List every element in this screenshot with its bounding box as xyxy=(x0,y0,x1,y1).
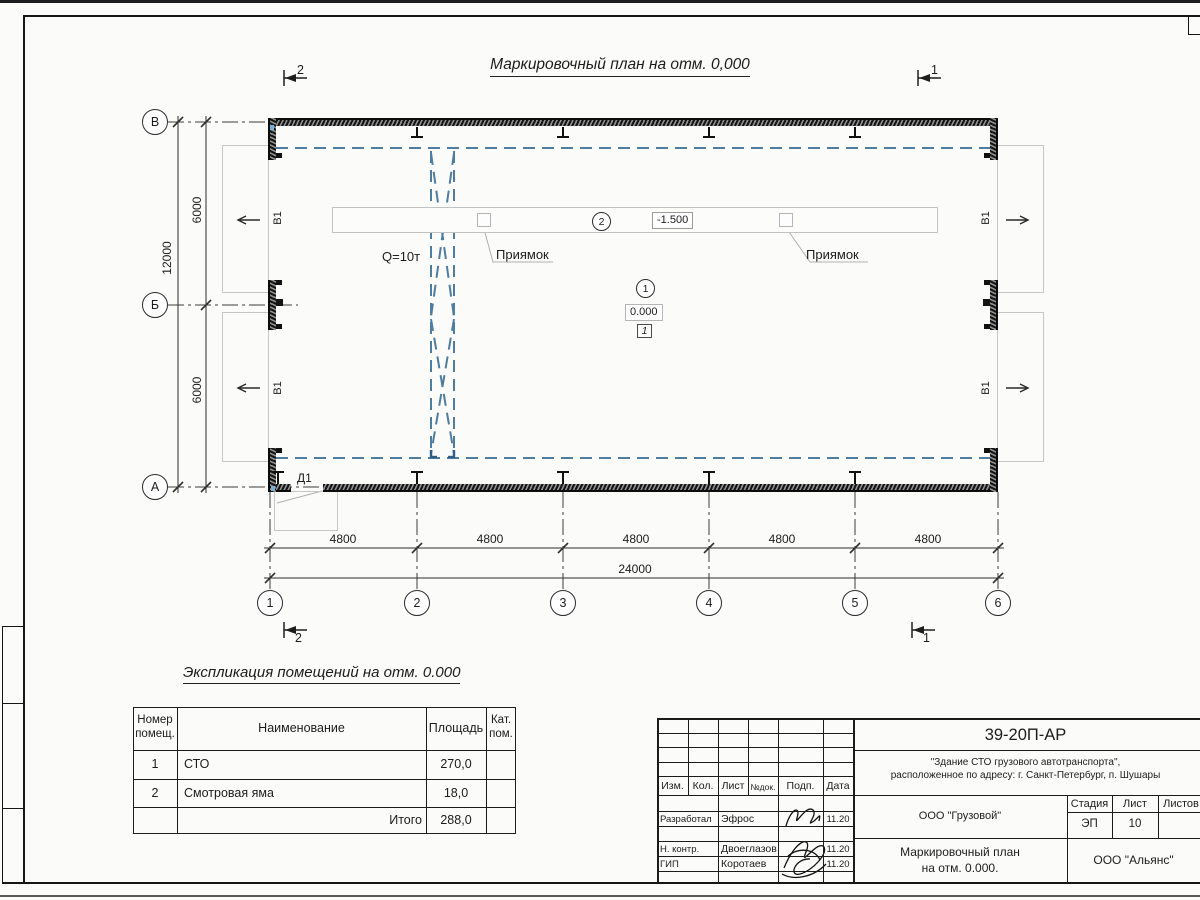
gate-tag: В1 xyxy=(272,378,284,398)
dim-bay: 4800 xyxy=(606,532,666,546)
tb-line xyxy=(657,718,1200,720)
row-name: Смотровая яма xyxy=(184,786,274,800)
door-tag: Д1 xyxy=(297,471,312,485)
axis-col-bubble: 6 xyxy=(985,590,1011,616)
dim-bay: 4800 xyxy=(313,532,373,546)
tb-line xyxy=(853,750,1200,751)
column-icon xyxy=(409,471,425,484)
tb-col-podp: Подп. xyxy=(778,780,823,792)
wall-left-pier xyxy=(268,280,276,330)
tb-date: 11.20 xyxy=(823,814,853,825)
total-label: Итого xyxy=(300,813,422,827)
column-icon xyxy=(555,471,571,484)
section-number: 2 xyxy=(295,631,302,645)
axis-row-bubble: А xyxy=(142,474,168,500)
tb-sheet-label: Лист xyxy=(1112,798,1158,810)
wall-right-top xyxy=(990,118,998,160)
tb-line xyxy=(657,718,659,883)
section-number: 2 xyxy=(297,63,304,77)
tb-stage-value: ЭП xyxy=(1067,818,1112,830)
dim-bay: 4800 xyxy=(752,532,812,546)
tb-line xyxy=(778,718,779,883)
column-icon xyxy=(701,471,717,484)
pit-label: Приямок xyxy=(496,247,549,262)
tb-name: Эфрос xyxy=(721,813,754,825)
table-line xyxy=(133,750,516,751)
column-icon xyxy=(409,127,425,138)
explication-title-text: Экспликация помещений на отм. 0.000 xyxy=(183,664,460,684)
tb-project-line2: расположенное по адресу: г. Санкт-Петерб… xyxy=(853,770,1198,781)
row-num: 2 xyxy=(133,786,177,800)
gate-apron xyxy=(222,145,269,293)
crane-capacity-label: Q=10т xyxy=(382,249,420,264)
tb-col-data: Дата xyxy=(823,780,853,792)
tb-role: Н. контр. xyxy=(660,844,699,855)
pier-column xyxy=(983,299,990,306)
gate-tag: В1 xyxy=(980,208,992,228)
axis-col-bubble: 3 xyxy=(550,590,576,616)
dim-bay: 4800 xyxy=(898,532,958,546)
tb-col-list: Лист xyxy=(718,780,748,792)
gate-apron xyxy=(222,312,269,462)
tb-col-kol: Кол. xyxy=(688,780,718,792)
wall-cap xyxy=(276,153,282,158)
total-area: 288,0 xyxy=(426,813,486,827)
pit-label: Приямок xyxy=(806,247,859,262)
wall-cap xyxy=(984,280,990,285)
pier-column xyxy=(276,299,283,306)
tb-document-code: 39-20П-АР xyxy=(853,726,1198,745)
drawing-sheet: Маркировочный план на отм. 0,000 xyxy=(0,0,1200,900)
row-name: СТО xyxy=(184,757,209,771)
tb-company: ООО "Альянс" xyxy=(1067,853,1200,867)
crane-lines xyxy=(276,148,990,458)
wall-cap xyxy=(276,448,282,453)
crane-corner-marks xyxy=(431,450,454,458)
column-icon xyxy=(270,471,286,484)
tb-line xyxy=(657,795,1200,796)
wall-bottom xyxy=(323,484,998,492)
tb-role: Разработал xyxy=(660,814,712,825)
col-header-area: Площадь xyxy=(426,721,486,735)
tb-name: Двоеглазов xyxy=(721,843,777,855)
gate-apron xyxy=(997,145,1044,293)
corner-mark xyxy=(271,486,275,491)
tb-line xyxy=(1067,812,1200,813)
tb-sheet-title-line1: Маркировочный план xyxy=(853,845,1067,859)
section-marks xyxy=(284,70,941,638)
col-header-num: Номер помещ. xyxy=(135,713,175,742)
pit-hatch-square xyxy=(779,213,793,227)
section-number: 1 xyxy=(931,63,938,77)
tb-name: Коротаев xyxy=(721,858,766,870)
tb-sheet-title-line2: на отм. 0.000. xyxy=(853,861,1067,875)
col-header-cat: Кат. пом. xyxy=(487,713,515,742)
gate-tag: В1 xyxy=(272,208,284,228)
column-icon xyxy=(555,127,571,138)
wall-cap xyxy=(984,324,990,329)
inspection-pit xyxy=(332,207,938,233)
door-porch xyxy=(274,491,338,531)
tb-stage-label: Стадия xyxy=(1067,798,1112,810)
tb-col-izm: Изм. xyxy=(657,780,688,792)
section-number: 1 xyxy=(923,631,930,645)
tb-project-line1: "Здание СТО грузового автотранспорта", xyxy=(853,757,1198,768)
callout-pit: 2 xyxy=(592,212,611,231)
tb-line xyxy=(853,838,1200,839)
column-icon xyxy=(847,127,863,138)
table-line xyxy=(133,779,516,780)
wall-top xyxy=(268,118,998,126)
axis-col-bubble: 1 xyxy=(257,590,283,616)
column-icon xyxy=(701,127,717,138)
row-num: 1 xyxy=(133,757,177,771)
tb-role: ГИП xyxy=(660,859,679,870)
dim-full: 12000 xyxy=(160,233,174,283)
leader-lines xyxy=(277,229,868,503)
tb-line xyxy=(718,718,719,883)
tb-sheet-value: 10 xyxy=(1112,818,1158,830)
axis-row-bubble: Б xyxy=(142,292,168,318)
row-area: 18,0 xyxy=(426,786,486,800)
tb-col-doc: №док. xyxy=(748,782,778,792)
row-area: 270,0 xyxy=(426,757,486,771)
wall-cap xyxy=(984,448,990,453)
wall-cap xyxy=(984,153,990,158)
tb-org: ООО "Грузовой" xyxy=(853,810,1067,822)
gate-apron xyxy=(997,312,1044,462)
table-line xyxy=(133,807,516,808)
corner-mark xyxy=(270,125,274,130)
room-number-tag: 1 xyxy=(637,324,652,338)
column-icon xyxy=(847,471,863,484)
dim-total: 24000 xyxy=(600,562,670,576)
wall-right-bottom xyxy=(990,448,998,492)
wall-cap xyxy=(276,324,282,329)
wall-right-pier xyxy=(990,280,998,330)
col-header-name: Наименование xyxy=(177,721,426,735)
tb-sheets-label: Листов xyxy=(1158,798,1200,810)
floor-level-tag: 0.000 xyxy=(625,304,663,321)
dim-half: 6000 xyxy=(190,190,204,230)
axis-col-bubble: 2 xyxy=(404,590,430,616)
dim-half: 6000 xyxy=(190,370,204,410)
axis-col-bubble: 4 xyxy=(696,590,722,616)
dim-bay: 4800 xyxy=(460,532,520,546)
explication-title: Экспликация помещений на отм. 0.000 xyxy=(183,664,460,681)
tb-date: 11.20 xyxy=(823,859,853,870)
tb-date: 11.20 xyxy=(823,844,853,855)
wall-cap xyxy=(276,280,282,285)
pit-level-tag: -1.500 xyxy=(652,212,693,229)
axis-col-bubble: 5 xyxy=(842,590,868,616)
callout-floor: 1 xyxy=(636,279,655,298)
axis-row-bubble: В xyxy=(142,109,168,135)
gate-tag: В1 xyxy=(980,378,992,398)
pit-hatch-square xyxy=(477,213,491,227)
